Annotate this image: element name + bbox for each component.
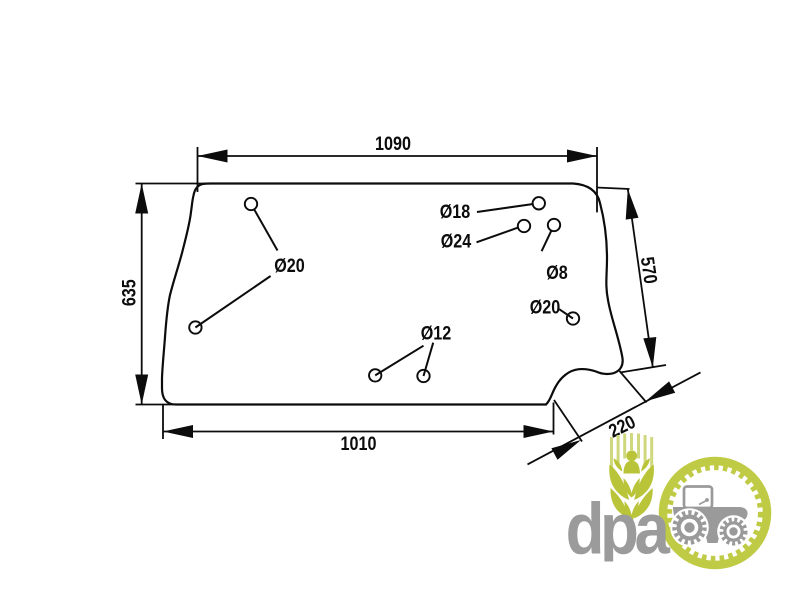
svg-text:635: 635 [118, 279, 140, 306]
svg-text:570: 570 [637, 255, 662, 285]
svg-text:Ø24: Ø24 [441, 230, 472, 252]
svg-text:Ø18: Ø18 [440, 201, 471, 223]
svg-text:Ø20: Ø20 [274, 255, 305, 277]
svg-text:1090: 1090 [375, 133, 411, 155]
svg-text:dpa: dpa [566, 489, 671, 570]
svg-text:Ø20: Ø20 [530, 296, 561, 318]
svg-text:1010: 1010 [341, 433, 377, 455]
svg-text:Ø8: Ø8 [546, 262, 568, 284]
svg-text:Ø12: Ø12 [421, 322, 452, 344]
